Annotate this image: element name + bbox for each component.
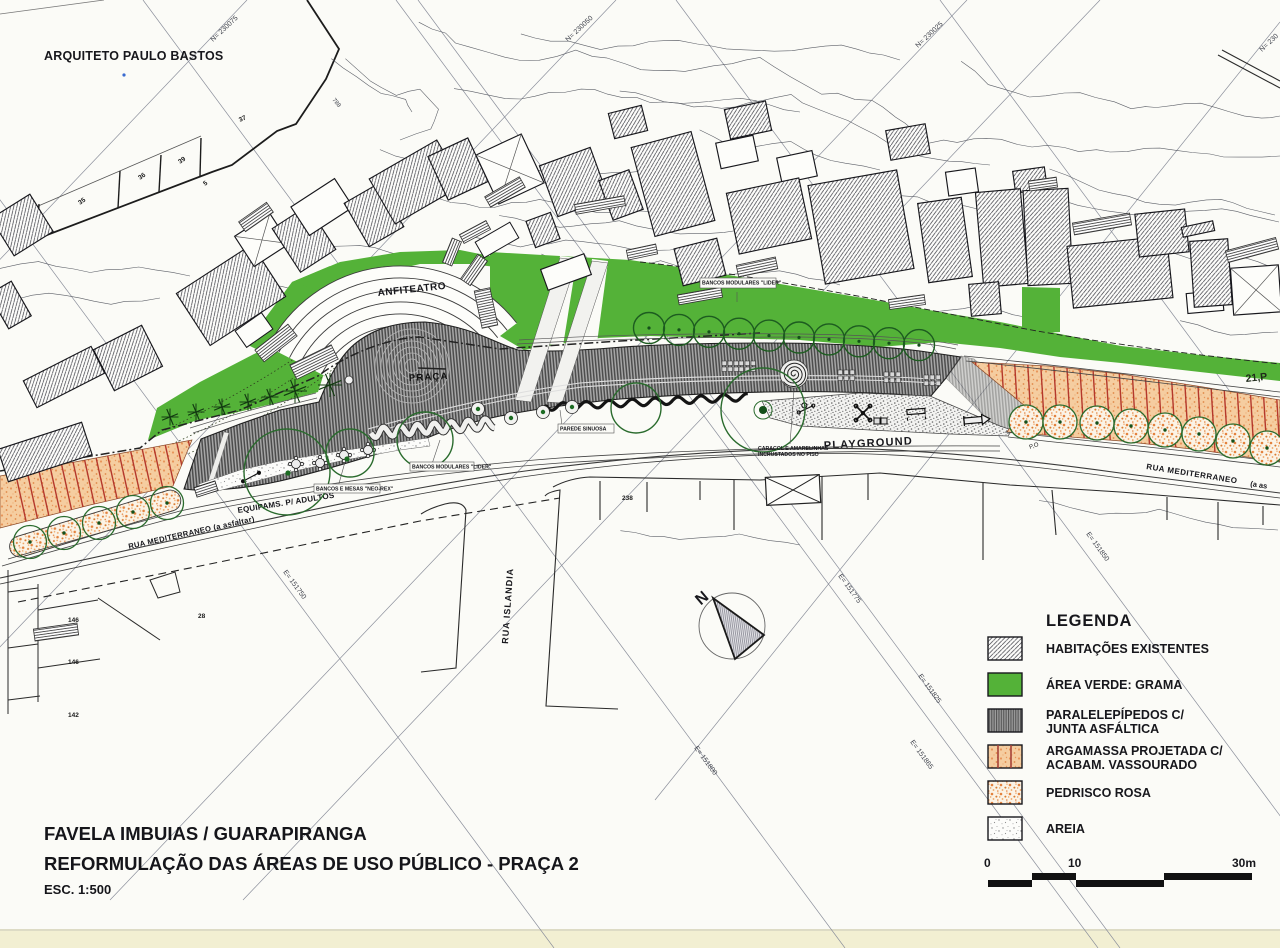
svg-text:142: 142 (68, 712, 79, 719)
svg-text:REFORMULAÇÃO DAS ÁREAS DE USO: REFORMULAÇÃO DAS ÁREAS DE USO PÚBLICO - … (44, 853, 579, 874)
svg-text:ARQUITETO PAULO BASTOS: ARQUITETO PAULO BASTOS (44, 49, 223, 63)
svg-text:0: 0 (984, 856, 991, 870)
svg-text:146: 146 (68, 617, 79, 624)
svg-text:ESC. 1:500: ESC. 1:500 (44, 882, 111, 897)
svg-text:146: 146 (68, 659, 79, 666)
svg-text:21,P: 21,P (1245, 371, 1268, 385)
svg-text:ÁREA VERDE: GRAMA: ÁREA VERDE: GRAMA (1046, 677, 1182, 692)
svg-text:30m: 30m (1232, 856, 1256, 870)
svg-text:10: 10 (1068, 856, 1082, 870)
svg-text:LEGENDA: LEGENDA (1046, 612, 1132, 630)
svg-text:PAREDE SINUOSA: PAREDE SINUOSA (560, 427, 607, 433)
svg-text:238: 238 (622, 495, 633, 502)
svg-text:FAVELA IMBUIAS / GUARAPIRANGA: FAVELA IMBUIAS / GUARAPIRANGA (44, 823, 367, 844)
svg-text:JUNTA ASFÁLTICA: JUNTA ASFÁLTICA (1046, 721, 1159, 736)
svg-text:AREIA: AREIA (1046, 822, 1085, 836)
svg-text:28: 28 (198, 613, 206, 620)
svg-text:PEDRISCO ROSA: PEDRISCO ROSA (1046, 786, 1151, 800)
svg-text:BANCOS MODULARES "LIDER": BANCOS MODULARES "LIDER" (702, 281, 782, 287)
svg-text:PARALELEPÍPEDOS C/: PARALELEPÍPEDOS C/ (1046, 707, 1185, 722)
svg-text:ARGAMASSA PROJETADA C/: ARGAMASSA PROJETADA C/ (1046, 744, 1223, 758)
svg-text:ACABAM. VASSOURADO: ACABAM. VASSOURADO (1046, 758, 1197, 772)
svg-text:INCRUSTADOS NO PISO: INCRUSTADOS NO PISO (758, 452, 819, 458)
svg-text:BANCOS E MESAS "NEO-REX": BANCOS E MESAS "NEO-REX" (316, 487, 394, 493)
svg-text:HABITAÇÕES EXISTENTES: HABITAÇÕES EXISTENTES (1046, 641, 1209, 656)
svg-text:BANCOS MODULARES "LIDER": BANCOS MODULARES "LIDER" (412, 465, 492, 471)
svg-text:PRAÇA: PRAÇA (409, 371, 449, 384)
